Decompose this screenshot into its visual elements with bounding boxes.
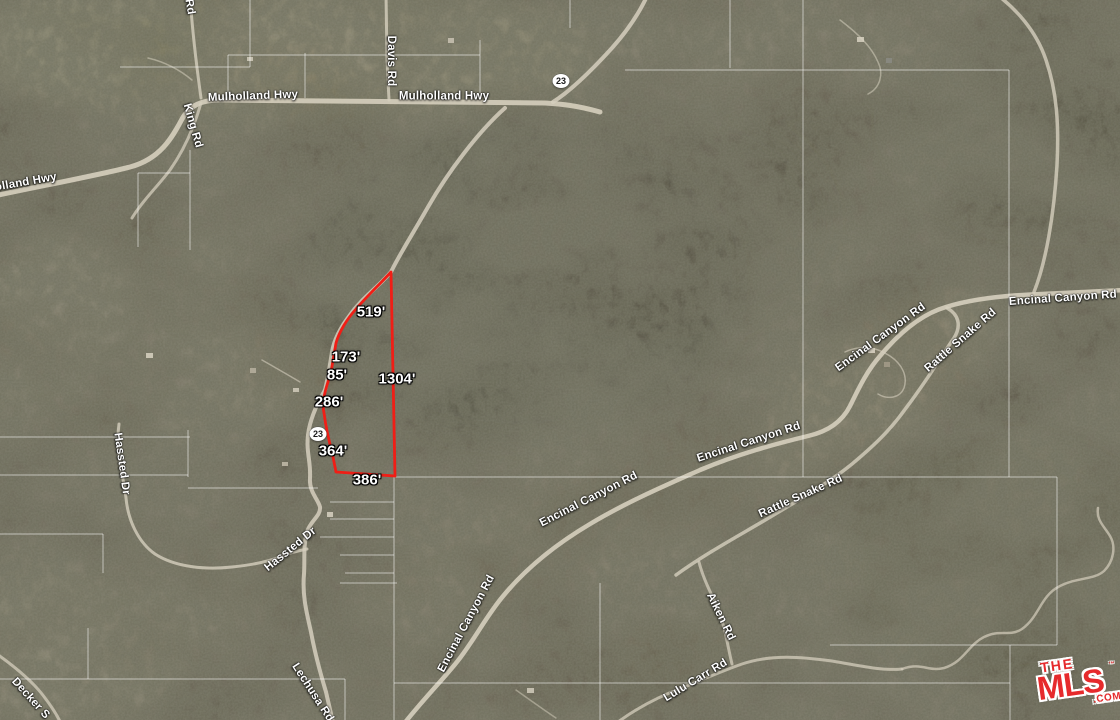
- themls-logo-trademark: ™: [1108, 662, 1115, 668]
- themls-logo-mls-row: MLS ™ .COM: [1035, 665, 1114, 703]
- boundary-measurement-286: 286': [315, 395, 344, 410]
- themls-logo-com: .COM: [1093, 692, 1120, 704]
- satellite-imagery: [0, 0, 1120, 720]
- boundary-measurement-173: 173': [332, 350, 361, 365]
- route-23-shield-south: 23: [310, 427, 327, 441]
- road-label-rd-cutoff: Rd: [182, 0, 196, 16]
- road-label-mulholland-hwy-east: Mulholland Hwy: [399, 91, 489, 103]
- route-23-shield-north: 23: [553, 74, 570, 88]
- boundary-measurement-85: 85': [327, 368, 347, 383]
- boundary-measurement-364: 364': [319, 444, 348, 459]
- themls-logo: THE MLS ™ .COM: [1033, 651, 1116, 717]
- boundary-measurement-519: 519': [357, 305, 386, 320]
- road-label-davis-rd: Davis Rd: [384, 36, 396, 87]
- terrain-grain: [0, 0, 1120, 720]
- satellite-parcel-map: Mulholland Hwy Mulholland Hwy olland Hwy…: [0, 0, 1120, 720]
- boundary-measurement-386: 386': [353, 473, 382, 488]
- boundary-measurement-1304: 1304': [379, 372, 416, 387]
